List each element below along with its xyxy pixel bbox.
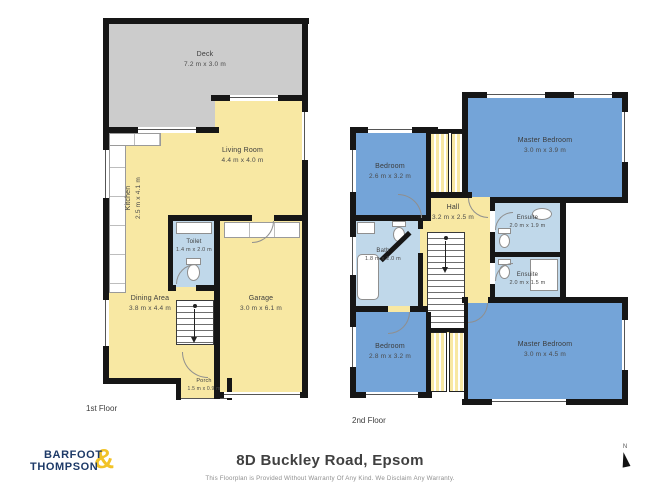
room-label-bath: Bath 1.8 m x 2.0 m — [352, 247, 414, 264]
room-label-garage: Garage 3.0 m x 6.1 m — [214, 294, 308, 314]
toilet-bowl — [499, 234, 510, 248]
first-floor-label: 1st Floor — [86, 404, 117, 413]
window — [487, 92, 545, 98]
floorplan-page: Deck 7.2 m x 3.0 m Living Room 4.4 m x 4… — [0, 0, 658, 493]
wall — [426, 312, 431, 392]
wardrobe — [449, 332, 465, 392]
room-label-master-top: Master Bedroom 3.0 m x 3.9 m — [468, 136, 622, 156]
wall — [490, 232, 495, 263]
room-label-living: Living Room 4.4 m x 4.0 m — [190, 146, 295, 166]
room-label-bedroom-bottom: Bedroom 2.8 m x 3.2 m — [354, 342, 426, 362]
wall — [302, 18, 308, 98]
page-title: 8D Buckley Road, Epsom — [130, 452, 530, 469]
wall — [168, 215, 252, 221]
wall — [490, 197, 628, 203]
window — [622, 112, 628, 162]
kitchen-bench — [109, 133, 161, 146]
window — [574, 92, 612, 98]
room-label-ensuite-top: Ensuite 2.0 m x 1.9 m — [495, 214, 560, 231]
wall — [428, 192, 472, 198]
wall — [418, 253, 423, 306]
disclaimer-text: This Floorplan is Provided Without Warra… — [130, 475, 530, 482]
window — [302, 112, 308, 160]
wall — [490, 252, 566, 257]
room-label-ensuite-bottom: Ensuite 2.0 m x 1.5 m — [495, 271, 560, 288]
wall — [428, 129, 468, 133]
wardrobe — [430, 332, 447, 392]
room-label-kitchen: Kitchen 2.5 m x 4.1 m — [124, 154, 148, 242]
wall — [103, 378, 181, 384]
second-floor-label: 2nd Floor — [352, 416, 386, 425]
logo-word-thompson: THOMPSON — [30, 461, 98, 473]
staircase-second-floor — [427, 232, 465, 329]
wall — [103, 18, 109, 134]
north-arrow-icon — [620, 451, 631, 467]
toilet-vanity — [176, 222, 212, 234]
living-room-region — [215, 96, 302, 130]
room-label-bedroom-top: Bedroom 2.6 m x 3.2 m — [354, 162, 426, 182]
garage-door — [224, 392, 300, 398]
stair-arrow-dot — [444, 236, 448, 240]
wall — [168, 285, 176, 291]
wall — [426, 328, 466, 332]
bath-vanity — [357, 222, 375, 234]
window — [622, 320, 628, 370]
wall — [488, 297, 628, 303]
room-label-porch: Porch 1.5 m x 0.9 m — [178, 378, 230, 393]
agency-logo: & BARFOOT THOMPSON — [28, 447, 128, 483]
porch-edge — [181, 398, 227, 399]
wall — [103, 18, 309, 24]
room-label-deck: Deck 7.2 m x 3.0 m — [145, 50, 265, 70]
window — [103, 150, 109, 198]
window — [366, 392, 418, 398]
window — [138, 127, 196, 133]
window — [368, 127, 412, 133]
compass-north-label: N — [618, 444, 632, 450]
wall — [350, 306, 388, 312]
room-label-toilet: Toilet 1.4 m x 2.0 m — [170, 238, 218, 255]
room-label-dining: Dining Area 3.8 m x 4.4 m — [100, 294, 200, 314]
stair-arrow-line — [445, 241, 446, 267]
room-label-master-bottom: Master Bedroom 3.0 m x 4.5 m — [468, 340, 622, 360]
stair-arrow-head — [191, 337, 197, 343]
wall — [196, 285, 220, 291]
logo-word-barfoot: BARFOOT — [44, 449, 103, 461]
stair-arrow-head — [442, 267, 448, 273]
window — [492, 399, 566, 405]
room-label-hall: Hall 3.2 m x 2.5 m — [405, 203, 501, 223]
wardrobe — [430, 133, 449, 196]
wall — [274, 215, 308, 221]
window — [230, 95, 278, 101]
